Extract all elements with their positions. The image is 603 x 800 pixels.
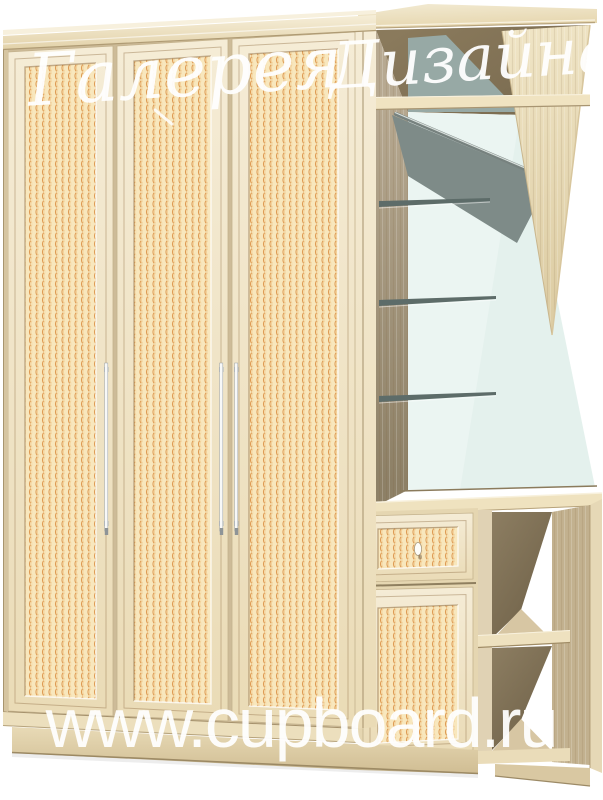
right-front-stile [355,30,376,729]
cabinet-drawer [363,513,473,582]
corner-compartment-top [492,512,552,640]
watermark-site-url: www.cupboard.ru [45,684,557,762]
door-1-rattan-panel [25,63,96,699]
product-render-wardrobe: Галерея Дизайна www.cupboard.ru [0,0,603,800]
wardrobe-illustration: Галерея Дизайна www.cupboard.ru [0,0,603,800]
wardrobe-door-2 [117,39,228,721]
wardrobe-door-3 [232,32,355,727]
door-handle-3 [234,363,239,535]
right-outer-panel [590,499,602,773]
door-handle-2 [219,363,224,535]
door-3-rattan-panel [249,49,338,710]
door-2-rattan-panel [134,56,211,704]
wardrobe-door-1 [8,46,113,716]
corner-plinth [495,764,590,786]
door-handle-1 [104,363,109,535]
